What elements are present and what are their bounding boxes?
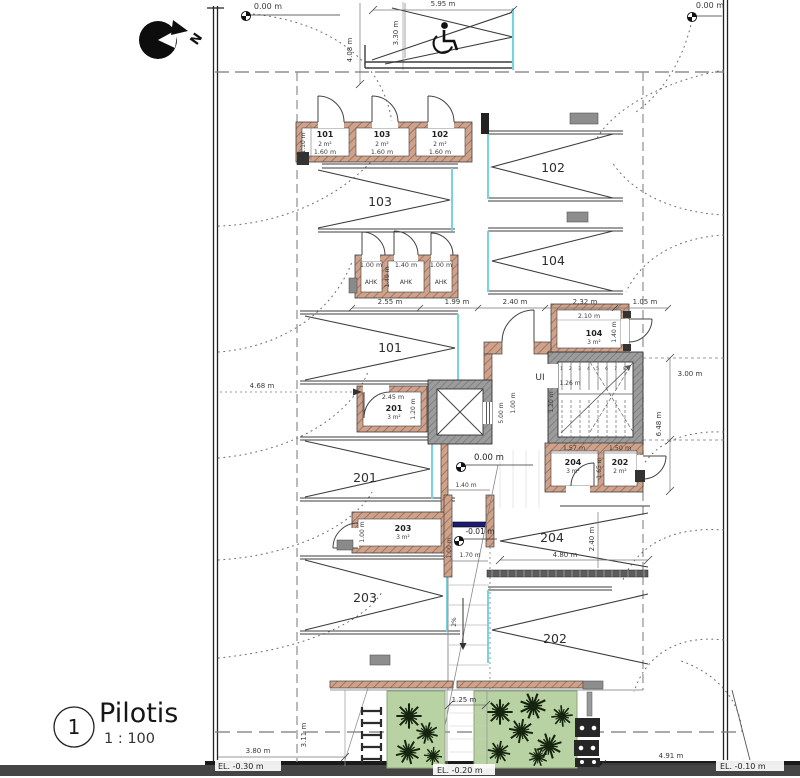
ahk-2-label: AHK bbox=[400, 280, 412, 286]
dim-stall204-width: 4.80 m bbox=[553, 551, 578, 559]
stall-203 bbox=[300, 556, 460, 634]
room-204-area: 3 m² bbox=[566, 468, 580, 475]
storage-102-area: 2 m² bbox=[433, 141, 447, 148]
stair-run-dim: 1.26 m bbox=[559, 380, 580, 387]
dim-chain-4: 2.32 m bbox=[573, 298, 598, 306]
room-104-depth-dim: 1.40 m bbox=[611, 321, 618, 342]
parking-label-102: 102 bbox=[541, 160, 565, 175]
landscape bbox=[330, 681, 752, 769]
ahk-depth-dim: 1.40 m bbox=[384, 266, 391, 287]
stair-name: UI bbox=[535, 373, 544, 383]
room-202-width-dim: 1.50 m bbox=[609, 445, 631, 452]
dim-chain-3: 2.40 m bbox=[503, 298, 528, 306]
site-fixtures bbox=[574, 692, 600, 767]
room-203-area: 3 m² bbox=[396, 534, 410, 541]
storage-block-top: 101 2 m² 1.60 m 103 2 m² 1.60 m 102 2 m²… bbox=[296, 96, 472, 165]
room-104-area: 3 m² bbox=[587, 339, 601, 346]
stall-201 bbox=[300, 437, 455, 501]
dim-left-offset: 4.68 m bbox=[250, 382, 275, 390]
ahk-3-label: AHK bbox=[435, 280, 447, 286]
ahk-3-width: 1.00 m bbox=[430, 262, 452, 269]
elevation-markers: 0.00 m 0.00 m 0.00 m -0.01 m EL. -0.30 m… bbox=[215, 1, 784, 775]
room-201-number: 201 bbox=[386, 404, 403, 413]
storage-height-dim: 1.10 m bbox=[300, 132, 307, 153]
elevation-lobby: 0.00 m bbox=[474, 453, 504, 463]
dim-chain-2: 1.99 m bbox=[445, 298, 470, 306]
room-201-area: 3 m² bbox=[387, 414, 401, 421]
benchmark-icon bbox=[454, 536, 463, 545]
parking-label-201: 201 bbox=[353, 470, 377, 485]
floor-plan-page: 102 103 104 101 201 203 204 202 101 2 m²… bbox=[0, 0, 800, 778]
dim-elevator-gap: 1.00 m bbox=[510, 392, 517, 413]
storage-103-number: 103 bbox=[374, 130, 391, 139]
dim-bottom-right: 4.91 m bbox=[659, 752, 684, 760]
room-204-number: 204 bbox=[565, 458, 582, 467]
room-201-depth-dim: 1.20 m bbox=[410, 398, 417, 419]
storage-103-width: 1.60 m bbox=[371, 149, 393, 156]
ahk-block: 1.00 m 1.40 m 1.00 m AHK AHK AHK 1.40 m bbox=[349, 231, 458, 298]
room-202-area: 2 m² bbox=[613, 468, 627, 475]
stair-tread-numbers: 1 2 3 4 5 6 7 8 bbox=[560, 366, 626, 372]
room-203-number: 203 bbox=[395, 524, 412, 533]
parking-label-202: 202 bbox=[543, 631, 567, 646]
benchmark-icon bbox=[456, 462, 465, 471]
elevation-ramp-top: -0.01 m bbox=[465, 527, 494, 536]
dim-elevator-side: 5.00 m bbox=[498, 402, 505, 423]
sheet-number: 1 bbox=[68, 715, 81, 739]
ramp-slope: 2% bbox=[451, 617, 458, 627]
room-203-depth-dim: 1.00 m bbox=[359, 521, 366, 542]
dim-walkway: 1.25 m bbox=[452, 696, 477, 704]
parking-label-203: 203 bbox=[353, 590, 377, 605]
stair-flight-width-dim: 1.20 m bbox=[548, 391, 555, 412]
drawing-title: Pilotis bbox=[99, 698, 178, 729]
storage-103-area: 2 m² bbox=[375, 141, 389, 148]
bike-racks bbox=[362, 707, 381, 763]
storage-101-width: 1.60 m bbox=[314, 149, 336, 156]
drain-grate bbox=[487, 570, 648, 577]
room-201-width-dim: 2.45 m bbox=[382, 394, 404, 401]
dim-bottom-left: 3.80 m bbox=[246, 747, 271, 755]
stairwell: 1 2 3 4 5 6 7 8 1.26 m 1.20 m bbox=[547, 352, 643, 445]
room-203: 203 3 m² 1.00 m bbox=[333, 512, 448, 553]
stall-202 bbox=[488, 587, 648, 664]
dim-chain-5: 1.05 m bbox=[633, 298, 658, 306]
title-block: 1 Pilotis 1 : 100 bbox=[54, 698, 178, 747]
room-104-width-dim: 2.10 m bbox=[578, 313, 600, 320]
storage-doors bbox=[318, 96, 454, 122]
room-201: 2.45 m 201 3 m² 1.20 m bbox=[357, 385, 427, 432]
dim-stair-width: 3.00 m bbox=[678, 370, 703, 378]
storage-101-area: 2 m² bbox=[318, 141, 332, 148]
ahk-1-label: AHK bbox=[365, 280, 377, 286]
parking-label-103: 103 bbox=[368, 194, 392, 209]
dim-chain-1: 2.55 m bbox=[378, 298, 403, 306]
dim-ramp-bottom-width: 1.70 m bbox=[459, 552, 480, 559]
dim-ramp-top-width: 1.40 m bbox=[455, 482, 476, 489]
ahk-1-width: 1.00 m bbox=[360, 262, 382, 269]
dim-stall-depth: 3.30 m bbox=[392, 21, 400, 46]
elevation-bottom-left: EL. -0.30 m bbox=[218, 762, 264, 771]
dim-stall204-depth: 2.40 m bbox=[588, 527, 596, 552]
entry-door bbox=[502, 310, 534, 342]
ahk-doors bbox=[362, 231, 453, 255]
floor-plan-canvas: 102 103 104 101 201 203 204 202 101 2 m²… bbox=[0, 0, 800, 778]
parking-label-104: 104 bbox=[541, 253, 565, 268]
canopy-edge-right bbox=[457, 681, 583, 688]
elevation-bottom-center: EL. -0.20 m bbox=[437, 766, 483, 775]
dim-core-depth: 6.48 m bbox=[655, 412, 663, 437]
elevation-top-right: 0.00 m bbox=[696, 1, 724, 10]
dim-bottom-left-v: 3.11 m bbox=[300, 723, 308, 748]
drawing-scale: 1 : 100 bbox=[104, 731, 155, 747]
north-arrow: N bbox=[139, 20, 204, 59]
elevation-bottom-right: EL. -0.10 m bbox=[720, 762, 766, 771]
storage-101-number: 101 bbox=[317, 130, 334, 139]
dim-top-setback: 4.08 m bbox=[346, 38, 354, 63]
dim-ramp-side: 1.00 m bbox=[446, 537, 453, 558]
parking-label-204: 204 bbox=[540, 530, 564, 545]
elevation-top-left: 0.00 m bbox=[254, 2, 282, 11]
room-104: 2.10 m 104 3 m² 1.40 m bbox=[551, 304, 652, 354]
storage-102-number: 102 bbox=[432, 130, 449, 139]
canopy-edge-left bbox=[330, 681, 453, 688]
north-label: N bbox=[186, 29, 205, 47]
room-202-depth-dim: 1.65 m bbox=[596, 457, 603, 478]
benchmark-icon bbox=[687, 12, 696, 21]
elevator bbox=[428, 380, 492, 444]
benchmark-icon bbox=[241, 11, 250, 20]
stall-accessible bbox=[365, 8, 513, 70]
dim-stall-width: 5.95 m bbox=[431, 0, 456, 8]
room-104-number: 104 bbox=[586, 329, 603, 338]
room-204-width-dim: 1.57 m bbox=[563, 445, 585, 452]
room-202-number: 202 bbox=[612, 458, 629, 467]
storage-102-width: 1.60 m bbox=[429, 149, 451, 156]
parking-label-101: 101 bbox=[378, 340, 402, 355]
ahk-2-width: 1.40 m bbox=[395, 262, 417, 269]
stall-102 bbox=[481, 113, 623, 201]
